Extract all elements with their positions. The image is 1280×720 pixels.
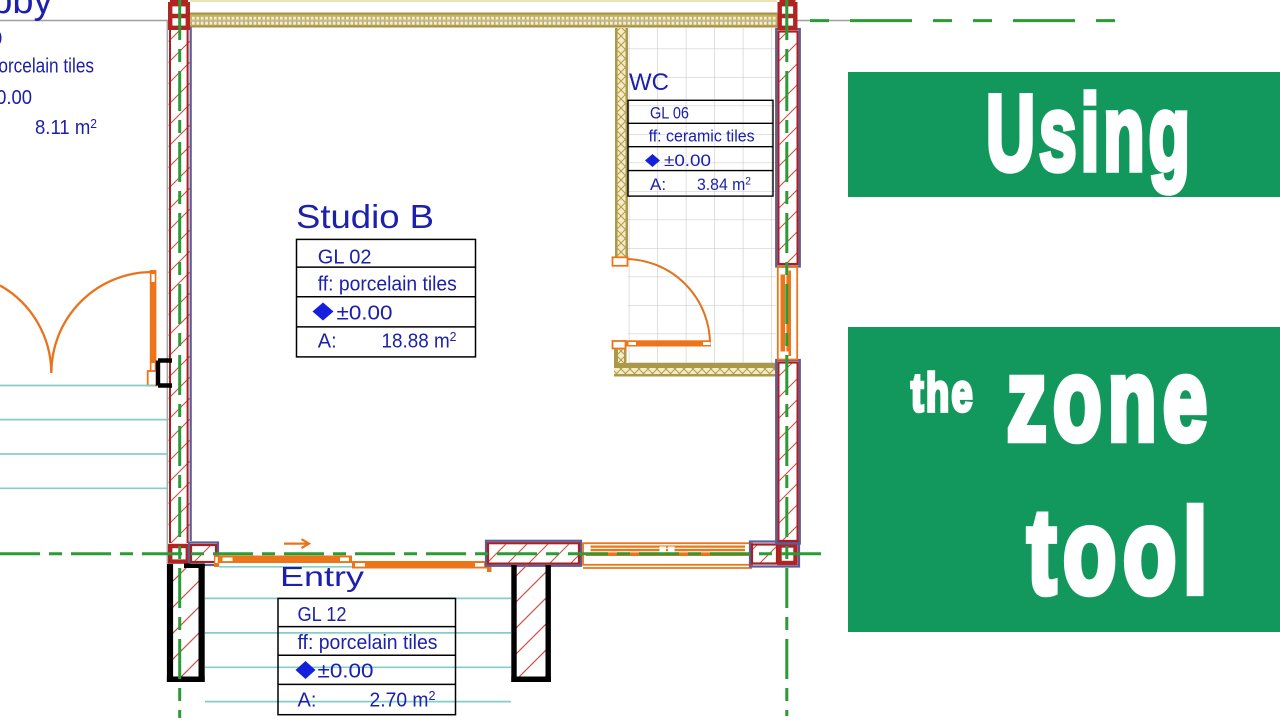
svg-text:2.70 m2: 2.70 m2 <box>370 688 436 712</box>
svg-text:±0.00: ±0.00 <box>337 303 393 325</box>
svg-text:zone: zone <box>1007 335 1214 466</box>
svg-text:GL 02: GL 02 <box>318 247 372 269</box>
svg-text:18.88 m2: 18.88 m2 <box>382 329 457 353</box>
svg-text:GL 06: GL 06 <box>650 104 689 123</box>
svg-text:A:: A: <box>650 175 666 194</box>
svg-text:Lobby: Lobby <box>0 0 53 22</box>
svg-text:ff: ceramic tiles: ff: ceramic tiles <box>649 127 755 146</box>
svg-text:Studio B: Studio B <box>296 198 434 235</box>
svg-text:ff: porcelain tiles: ff: porcelain tiles <box>0 56 94 78</box>
svg-text:±0.00: ±0.00 <box>318 661 374 683</box>
svg-text:A:: A: <box>298 690 317 712</box>
svg-text:±0.00: ±0.00 <box>0 87 32 109</box>
svg-text:A:: A: <box>318 331 337 353</box>
svg-text:3.84 m2: 3.84 m2 <box>697 175 751 194</box>
svg-text:8.11 m2: 8.11 m2 <box>35 116 97 139</box>
svg-text:±0.00: ±0.00 <box>664 151 711 170</box>
svg-text:ff: porcelain tiles: ff: porcelain tiles <box>318 274 457 296</box>
svg-text:tool: tool <box>1027 486 1214 620</box>
svg-text:Using: Using <box>986 73 1194 194</box>
svg-text:GL 10: GL 10 <box>0 28 2 50</box>
svg-text:ff: porcelain tiles: ff: porcelain tiles <box>298 632 438 654</box>
svg-text:GL 12: GL 12 <box>298 604 347 626</box>
svg-text:Entry: Entry <box>280 561 364 592</box>
svg-text:WC: WC <box>629 69 669 96</box>
svg-text:the: the <box>911 363 975 423</box>
